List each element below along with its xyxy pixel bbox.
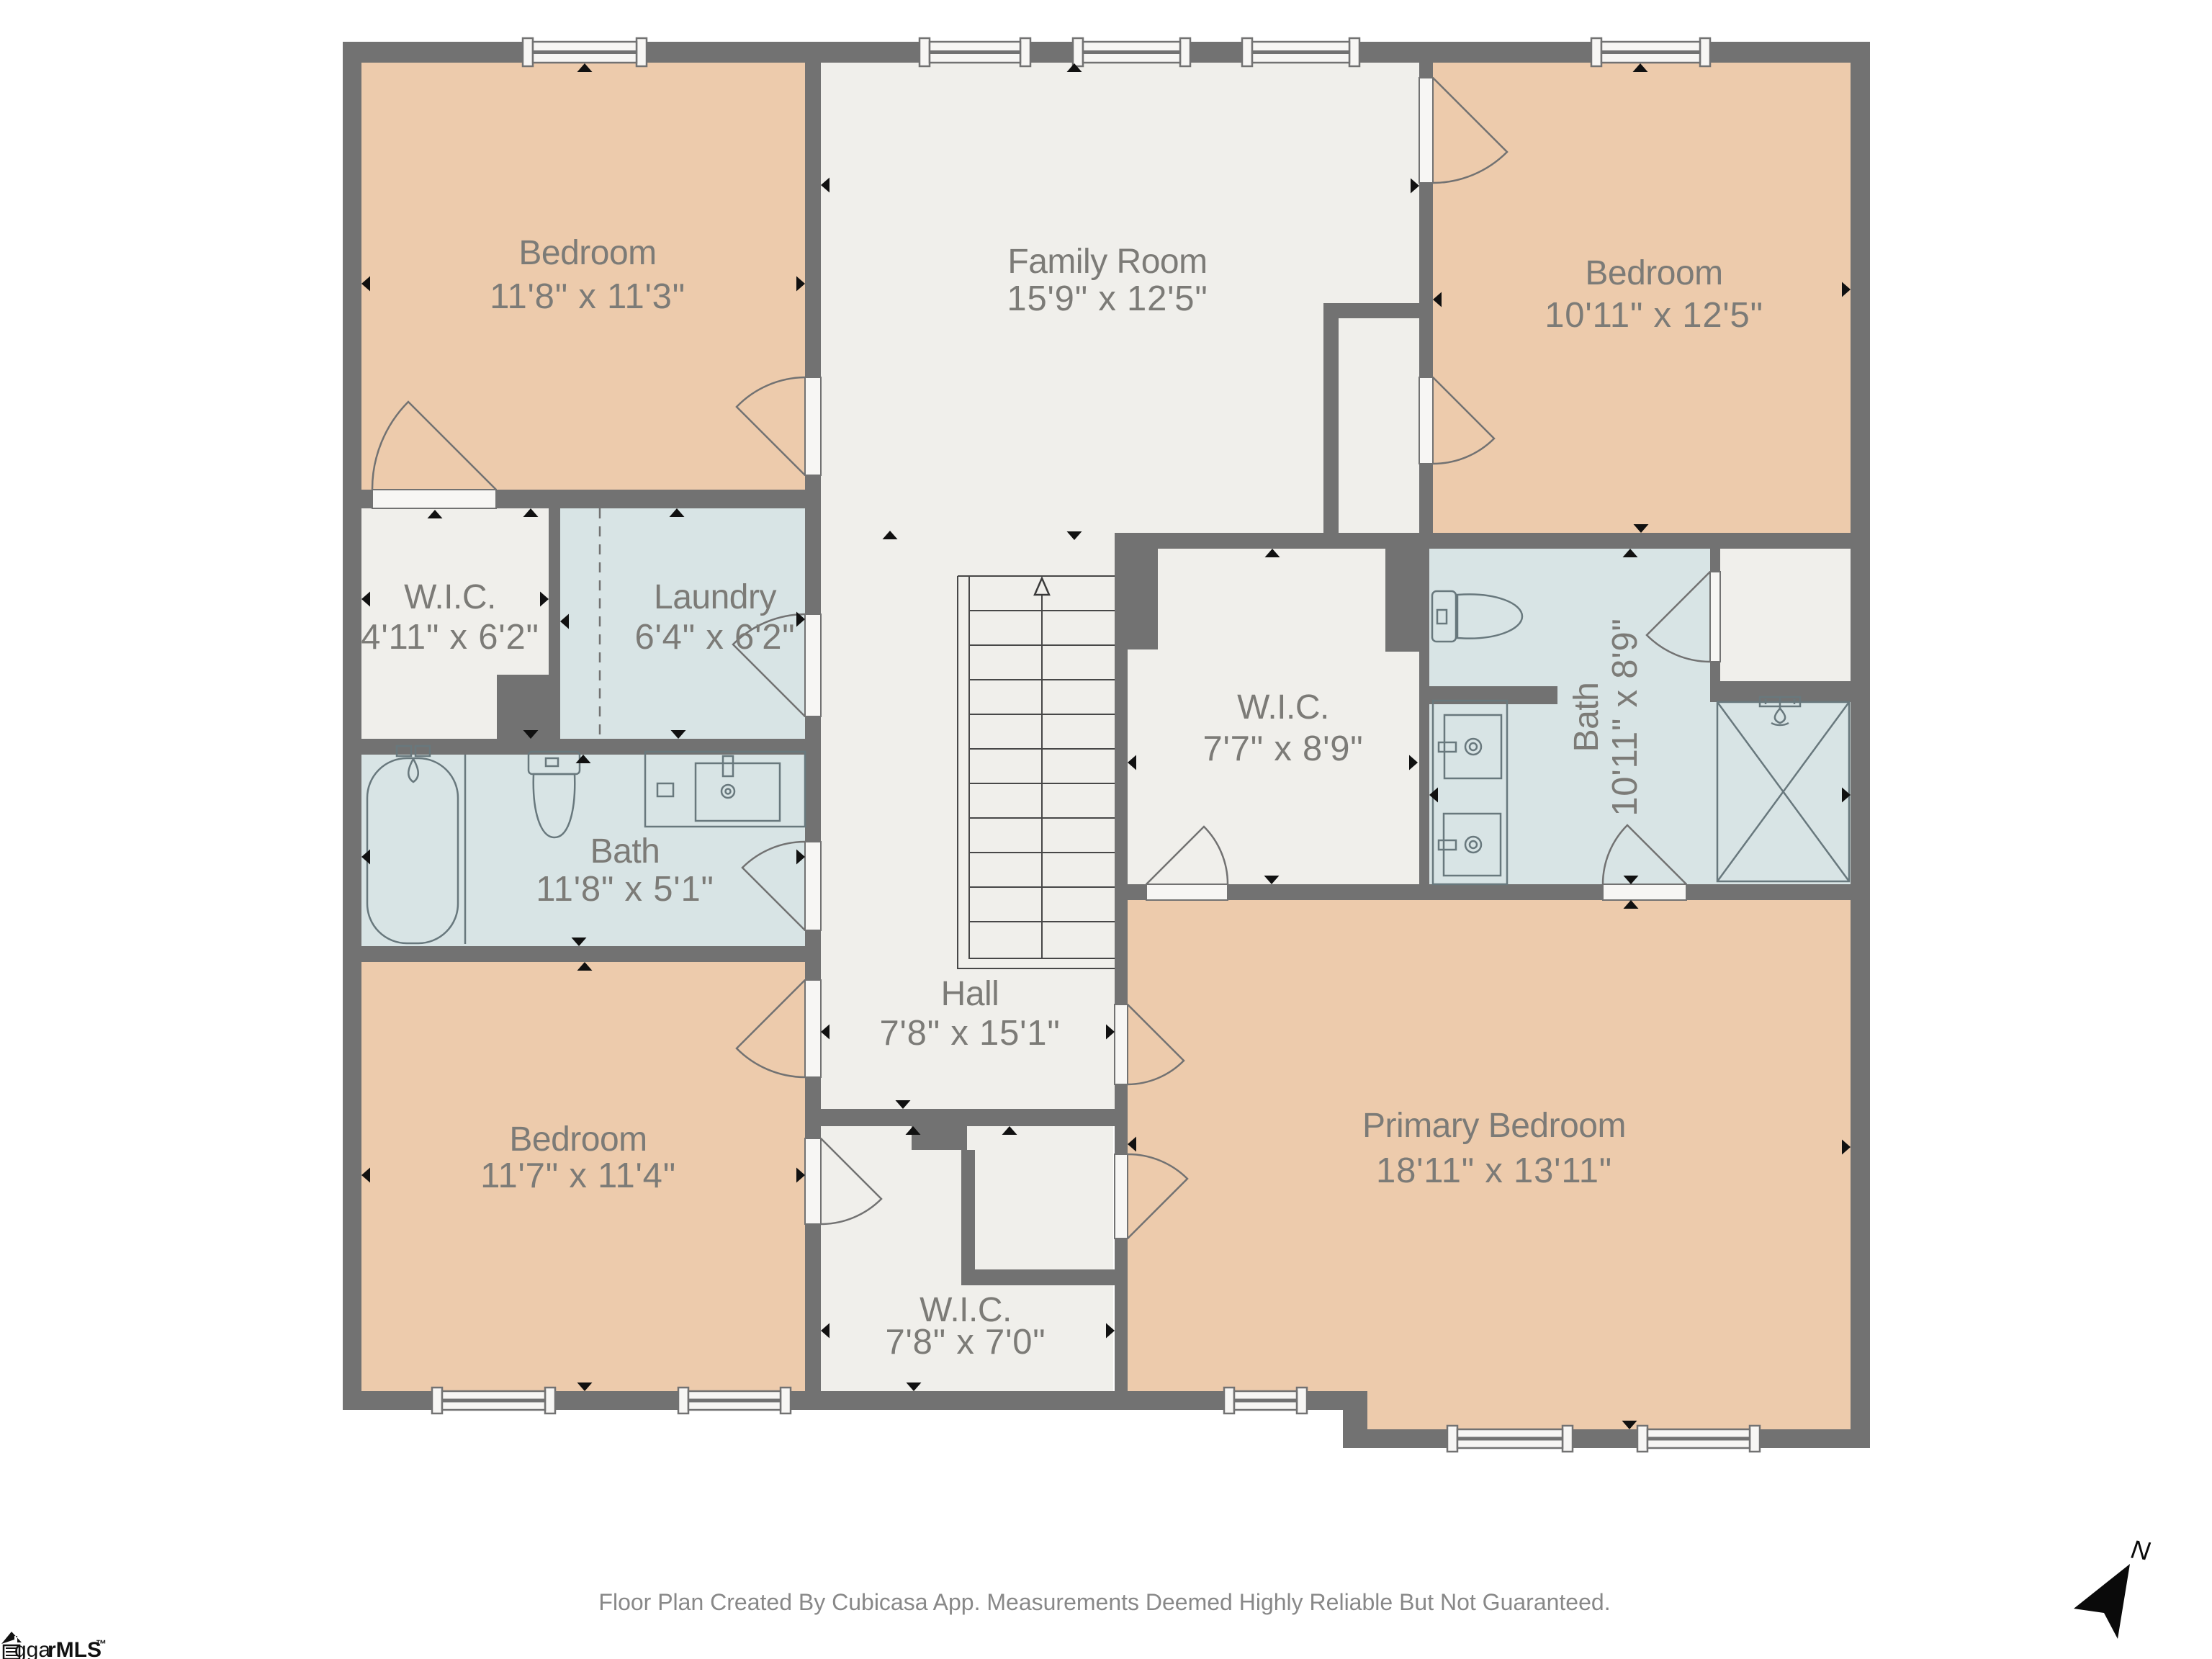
svg-text:W.I.C.: W.I.C.	[1237, 688, 1329, 727]
svg-text:Primary Bedroom: Primary Bedroom	[1362, 1107, 1626, 1145]
svg-text:11'8" x 5'1": 11'8" x 5'1"	[536, 870, 714, 909]
svg-text:Bath: Bath	[1568, 683, 1606, 752]
svg-text:rMLS: rMLS	[48, 1638, 102, 1659]
svg-text:Floor Plan Created By Cubicasa: Floor Plan Created By Cubicasa App. Meas…	[598, 1589, 1610, 1615]
svg-text:11'8" x 11'3": 11'8" x 11'3"	[490, 277, 685, 316]
svg-text:11'7" x 11'4": 11'7" x 11'4"	[480, 1156, 676, 1195]
svg-text:Bedroom: Bedroom	[1585, 254, 1722, 292]
svg-text:Hall: Hall	[941, 975, 999, 1013]
svg-text:10'11" x 8'9": 10'11" x 8'9"	[1606, 618, 1645, 817]
svg-text:10'11" x 12'5": 10'11" x 12'5"	[1545, 296, 1763, 335]
svg-text:6'4" x 6'2": 6'4" x 6'2"	[634, 618, 795, 657]
svg-text:4'11" x 6'2": 4'11" x 6'2"	[361, 618, 539, 657]
svg-text:15'9" x 12'5": 15'9" x 12'5"	[1007, 279, 1208, 318]
svg-text:Family Room: Family Room	[1007, 243, 1207, 281]
svg-text:Bath: Bath	[590, 832, 660, 871]
svg-text:Bedroom: Bedroom	[518, 234, 656, 272]
svg-text:7'7" x 8'9": 7'7" x 8'9"	[1202, 729, 1363, 768]
svg-text:18'11" x 13'11": 18'11" x 13'11"	[1376, 1151, 1612, 1190]
svg-text:™: ™	[96, 1638, 107, 1650]
svg-text:W.I.C.: W.I.C.	[404, 578, 496, 616]
svg-text:7'8" x 7'0": 7'8" x 7'0"	[885, 1323, 1046, 1362]
svg-text:Bedroom: Bedroom	[509, 1120, 647, 1159]
svg-text:gga: gga	[14, 1638, 50, 1659]
svg-text:Laundry: Laundry	[654, 578, 776, 616]
svg-text:7'8" x 15'1": 7'8" x 15'1"	[879, 1014, 1060, 1053]
